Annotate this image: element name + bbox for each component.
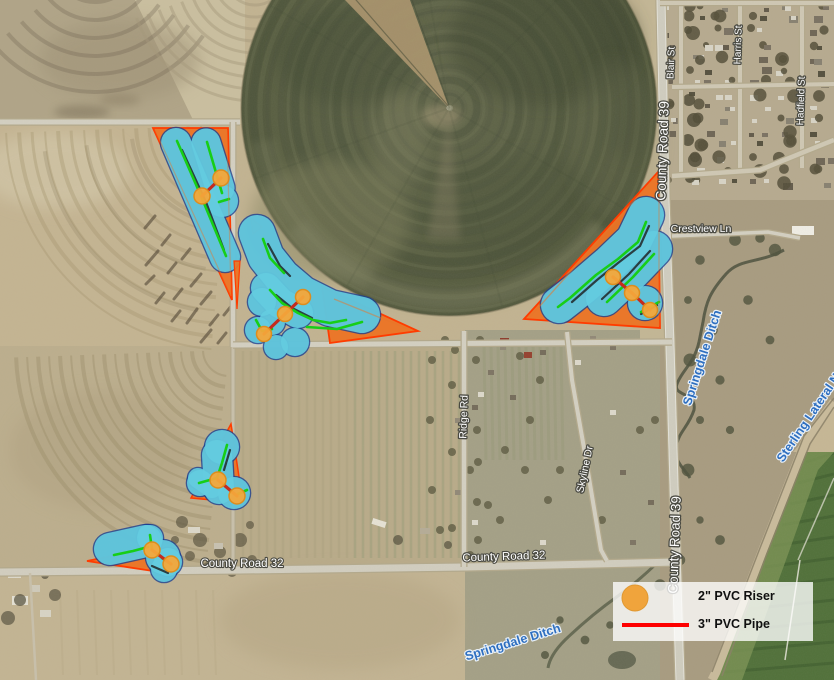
svg-text:Ridge Rd: Ridge Rd bbox=[457, 395, 471, 439]
svg-text:County Road 32: County Road 32 bbox=[200, 558, 283, 570]
svg-text:Blair St: Blair St bbox=[665, 46, 677, 79]
svg-text:Harris St: Harris St bbox=[732, 25, 744, 64]
svg-text:3" PVC Pipe: 3" PVC Pipe bbox=[698, 617, 770, 631]
svg-text:Crestview Ln: Crestview Ln bbox=[671, 223, 732, 235]
svg-text:Hadfield St: Hadfield St bbox=[795, 76, 808, 125]
svg-text:2" PVC Riser: 2" PVC Riser bbox=[698, 589, 775, 603]
